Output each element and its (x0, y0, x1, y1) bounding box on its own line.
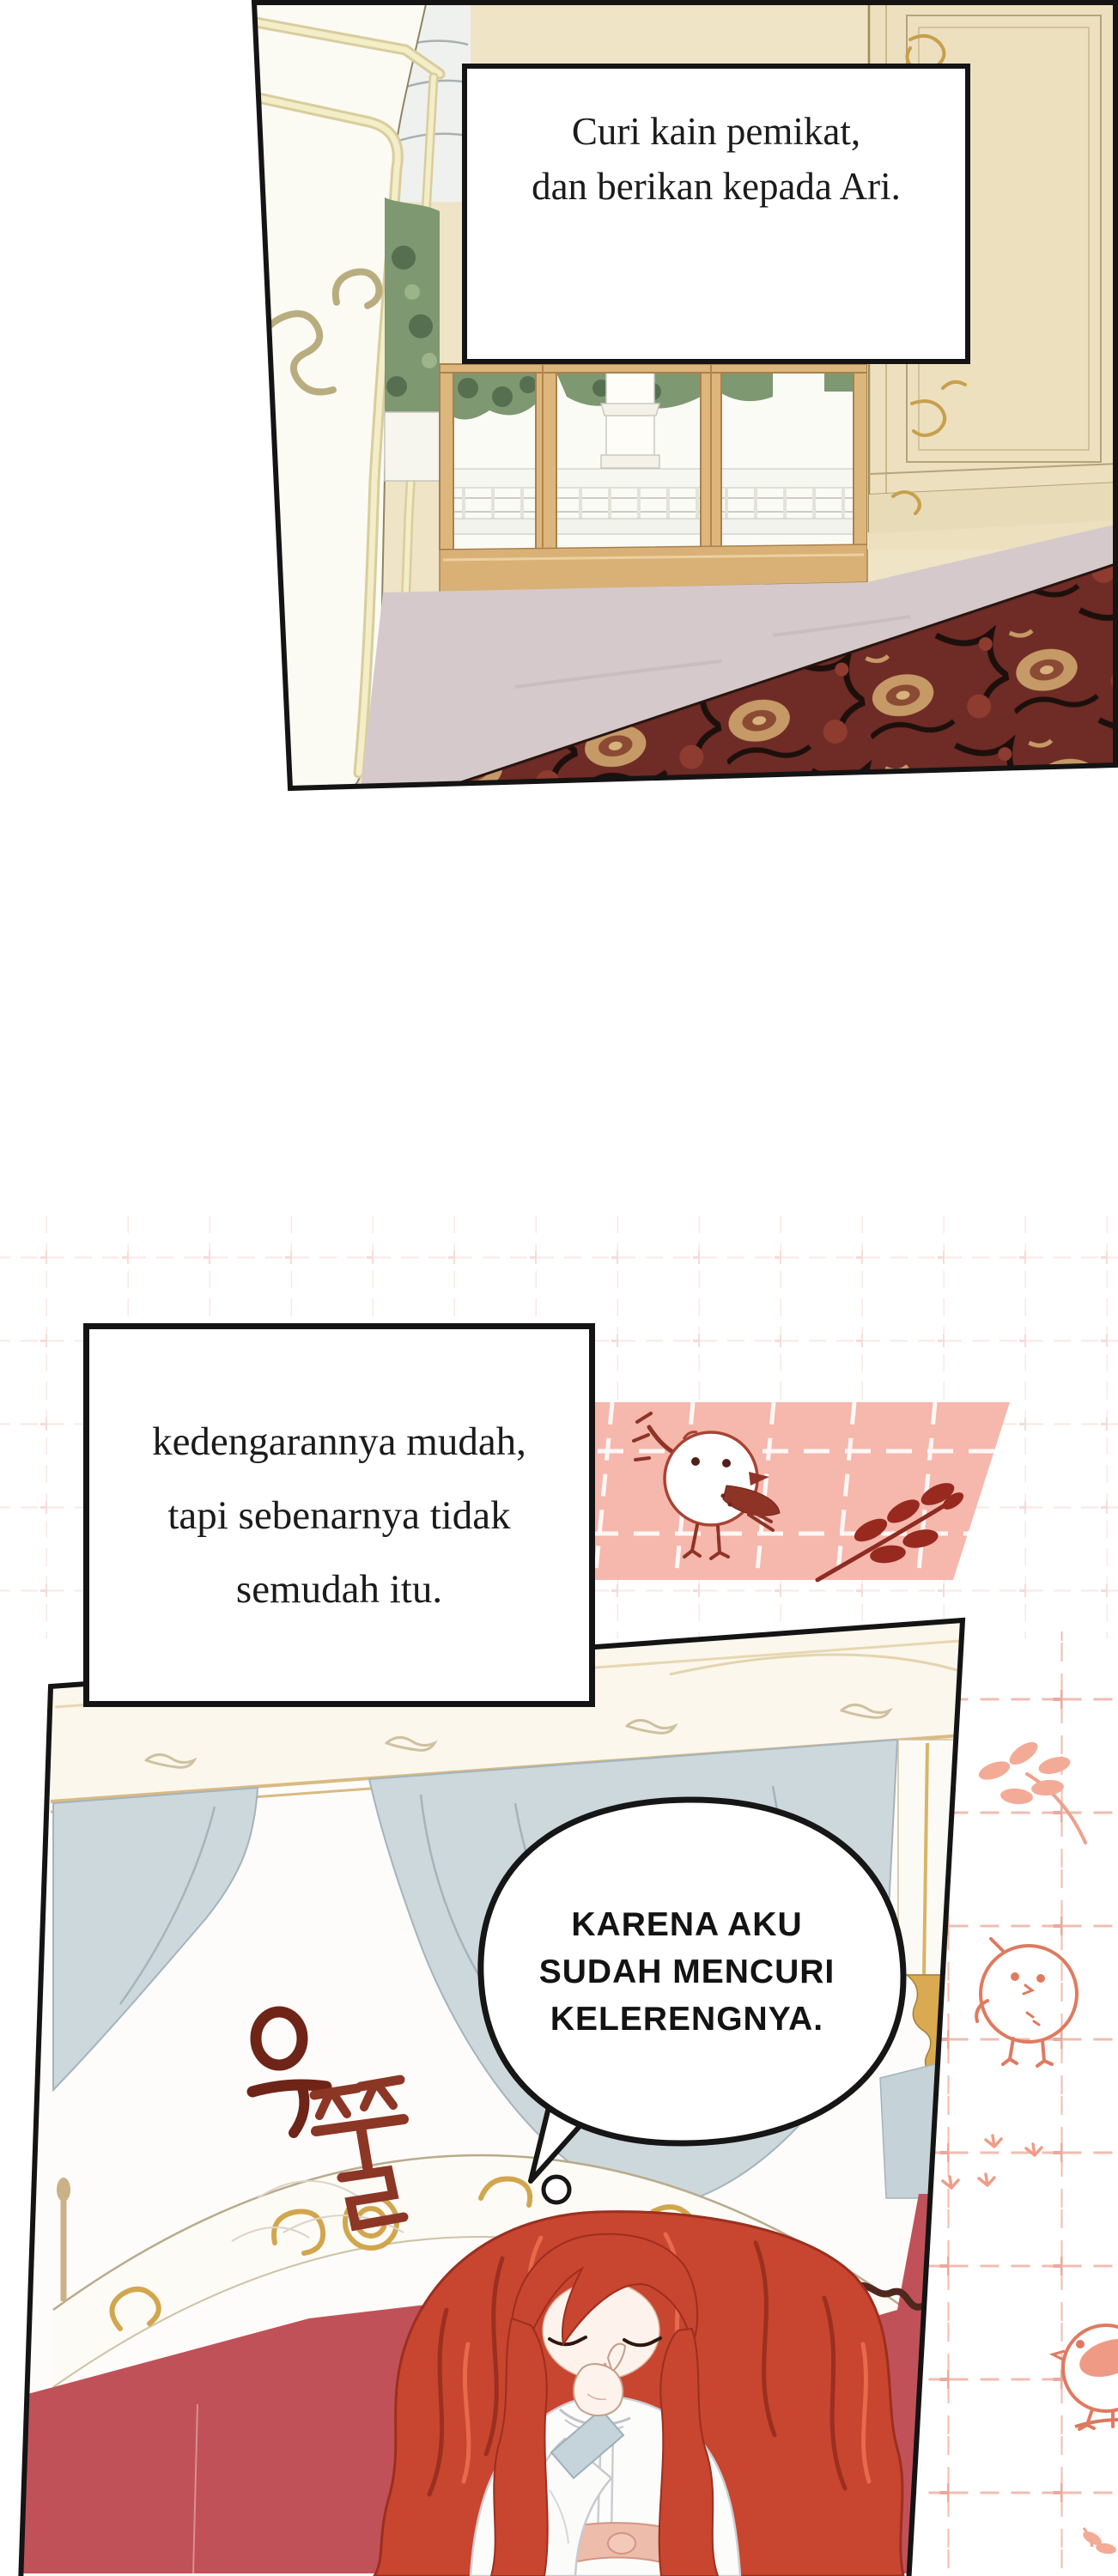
bubble-line: KARENA AKU (571, 1901, 802, 1948)
bubble-line: SUDAH MENCURI (539, 1948, 835, 1996)
caption-line: Curi kain pemikat, (572, 104, 860, 159)
caption-box-top: Curi kain pemikat, dan berikan kepada Ar… (462, 64, 970, 364)
thought-dot (544, 2177, 569, 2202)
comic-page: Curi kain pemikat, dan berikan kepada Ar… (0, 0, 1118, 2576)
window (440, 364, 867, 592)
panel-bottom (17, 1614, 970, 2576)
foliage-strip (385, 197, 440, 481)
caption-box-middle: kedengarannya mudah, tapi sebenarnya tid… (83, 1323, 595, 1707)
bubble-line: KELERENGNYA. (550, 1996, 823, 2043)
caption-line: kedengarannya mudah, (152, 1405, 526, 1479)
caption-line: dan berikan kepada Ari. (532, 159, 901, 214)
caption-line: semudah itu. (236, 1552, 442, 1626)
caption-line: tapi sebenarnya tidak (167, 1479, 510, 1552)
pink-washi-band (550, 1402, 1010, 1580)
thought-bubble-text: KARENA AKU SUDAH MENCURI KELERENGNYA. (515, 1851, 859, 2092)
garden-pillar (601, 369, 659, 468)
comic-artwork (0, 0, 1118, 2576)
